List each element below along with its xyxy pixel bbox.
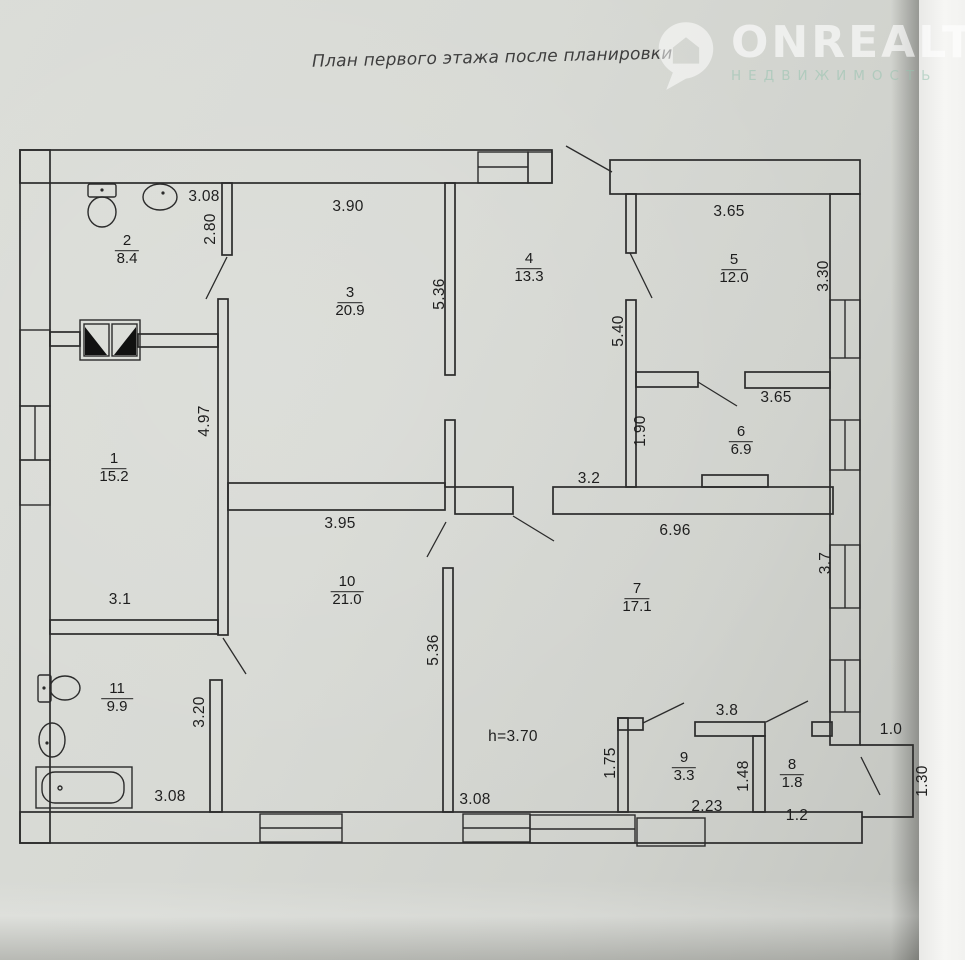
onrealt-watermark: ONREALT НЕДВИЖИМОСТЬ [655,20,965,94]
toilet-icon [38,675,80,702]
doors-layer [206,146,880,795]
fixtures-layer [36,184,177,808]
house-pin-icon [655,20,717,94]
floor-plan-photo: 1 15.2 2 8.4 3 20.9 4 13.3 5 12.0 6 6.9 … [0,0,965,960]
sink-icon [143,184,177,210]
toilet-icon [88,184,116,227]
stove-icon [80,320,140,360]
walls-layer [20,150,913,843]
page-edge-shadow [891,0,921,960]
windows-layer [20,152,860,846]
floor-plan-drawing [0,0,965,960]
watermark-text: ONREALT НЕДВИЖИМОСТЬ [731,20,965,84]
next-page-edge [919,0,965,960]
watermark-subtitle: НЕДВИЖИМОСТЬ [731,68,965,84]
sink-icon [39,723,65,757]
bottom-page-shade [0,880,919,960]
watermark-brand: ONREALT [731,20,965,66]
